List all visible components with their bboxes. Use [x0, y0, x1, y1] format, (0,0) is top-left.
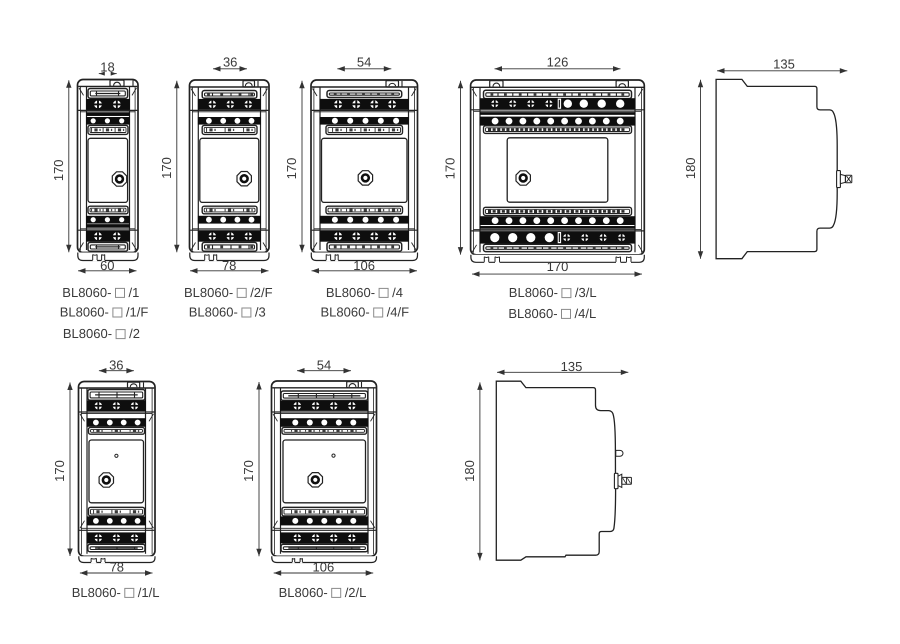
svg-text:BL8060-: BL8060- [279, 585, 328, 600]
svg-text:BL8060-: BL8060- [63, 326, 112, 341]
svg-text:BL8060-: BL8060- [189, 305, 238, 320]
svg-text:36: 36 [109, 357, 123, 372]
svg-text:54: 54 [357, 55, 371, 70]
svg-text:/2/F: /2/F [250, 285, 272, 300]
svg-text:BL8060-: BL8060- [326, 285, 375, 300]
svg-text:/3: /3 [255, 305, 266, 320]
svg-text:BL8060-: BL8060- [321, 305, 370, 320]
svg-text:/4/L: /4/L [575, 306, 597, 321]
svg-text:/2: /2 [129, 326, 140, 341]
svg-text:180: 180 [462, 460, 477, 482]
svg-text:54: 54 [317, 357, 331, 372]
svg-text:/1: /1 [129, 285, 140, 300]
svg-text:170: 170 [51, 159, 66, 181]
svg-text:36: 36 [223, 55, 237, 70]
svg-text:170: 170 [547, 259, 569, 274]
svg-text:126: 126 [547, 55, 569, 70]
svg-text:18: 18 [100, 59, 114, 74]
svg-text:170: 170 [284, 158, 299, 180]
svg-text:BL8060-: BL8060- [508, 306, 557, 321]
svg-text:170: 170 [159, 157, 174, 179]
svg-text:180: 180 [683, 157, 698, 179]
svg-text:106: 106 [313, 560, 335, 575]
svg-text:/3/L: /3/L [575, 285, 597, 300]
svg-text:BL8060-: BL8060- [60, 305, 109, 320]
svg-text:/1/F: /1/F [126, 305, 148, 320]
svg-text:BL8060-: BL8060- [72, 585, 121, 600]
svg-text:/4: /4 [392, 285, 403, 300]
svg-text:/2/L: /2/L [345, 585, 367, 600]
svg-text:135: 135 [773, 57, 795, 72]
svg-text:/1/L: /1/L [138, 585, 160, 600]
svg-text:78: 78 [110, 560, 124, 575]
svg-text:BL8060-: BL8060- [509, 285, 558, 300]
svg-text:BL8060-: BL8060- [184, 285, 233, 300]
svg-text:135: 135 [561, 359, 583, 374]
svg-text:/4/F: /4/F [387, 305, 409, 320]
svg-text:170: 170 [443, 158, 458, 180]
svg-text:170: 170 [52, 460, 67, 482]
svg-text:BL8060-: BL8060- [62, 285, 111, 300]
svg-text:170: 170 [241, 460, 256, 482]
